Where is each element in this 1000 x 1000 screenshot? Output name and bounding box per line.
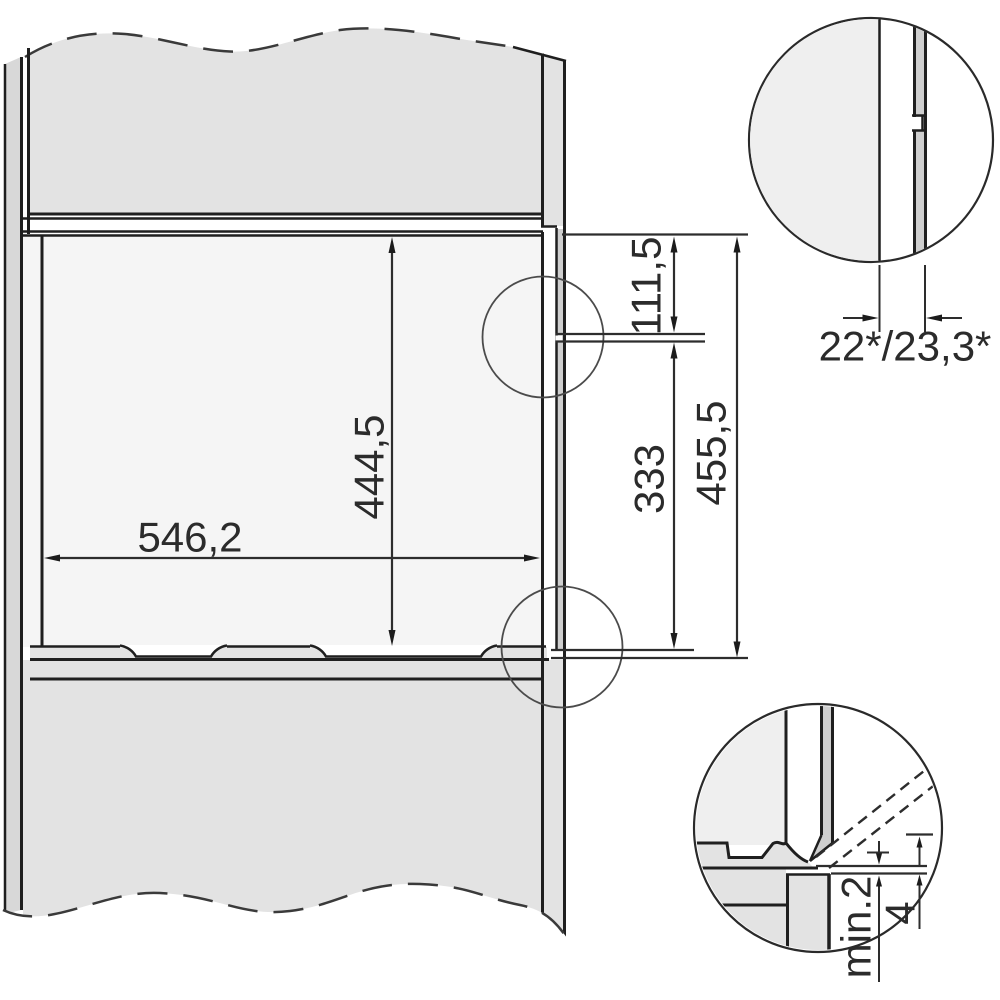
installation-diagram: 444,5 546,2 111,5 333 455,5 (0, 0, 1000, 1000)
dimension-upper-front: 111,5 (623, 237, 678, 336)
arrowhead-down (671, 317, 678, 333)
dimension-label-offset: 4 (877, 901, 924, 924)
arrowhead-left (926, 315, 942, 322)
detail-lower-front-board (788, 874, 828, 956)
arrowhead-right (863, 315, 879, 322)
arrowhead-up (734, 237, 741, 253)
dimension-label-lower-front: 333 (626, 444, 673, 514)
diagram-canvas: 444,5 546,2 111,5 333 455,5 (0, 0, 1000, 1000)
dimension-label-front-protrusion: 22*/23,3* (819, 323, 992, 370)
dimension-lower-front: 333 (626, 343, 678, 650)
dimension-label-upper-front: 111,5 (623, 237, 670, 336)
dimension-front-protrusion: 22*/23,3* (819, 265, 992, 370)
niche-interior (23, 237, 541, 647)
dimension-label-niche-height: 444,5 (346, 414, 393, 519)
arrowhead-up (671, 343, 678, 359)
dimension-label-niche-depth: 546,2 (137, 514, 242, 561)
upper-cabinet-body (30, 28, 563, 226)
detail-view-bottom-corner: min.2 4 (690, 700, 946, 982)
front-split-gap (556, 336, 563, 341)
dimension-label-total-front: 455,5 (688, 400, 735, 505)
detail-cabinet-face (746, 15, 879, 267)
dimension-total-front: 455,5 (688, 237, 741, 658)
rear-wall-panel (5, 57, 21, 914)
detail-view-front-edge: 22*/23,3* (746, 14, 993, 370)
detail-lower-cabinet (690, 870, 786, 962)
floor-cutout-2-fill (310, 645, 497, 657)
detail-front-panel-core (916, 14, 925, 264)
arrowhead-down (734, 642, 741, 658)
detail-niche-interior (690, 700, 786, 845)
dimension-label-min-gap: min.2 (833, 876, 880, 979)
cabinet-section-drawing (3, 28, 623, 1000)
arrowhead-up (671, 237, 678, 253)
arrowhead-down (671, 633, 678, 649)
